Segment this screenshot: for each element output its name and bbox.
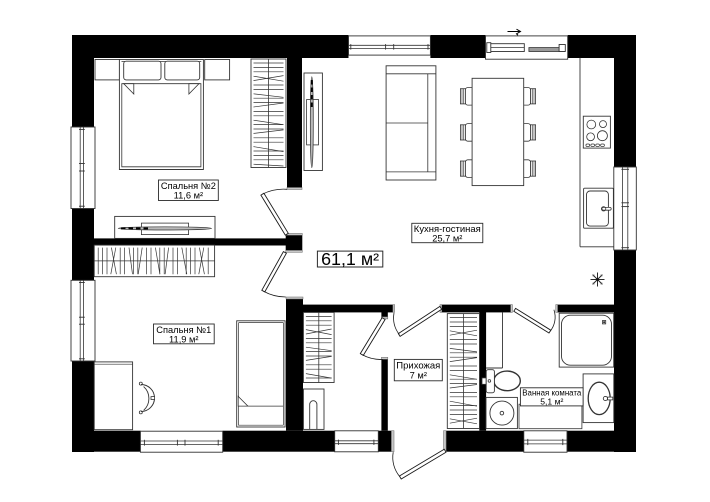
svg-text:Прихожая: Прихожая <box>396 361 440 371</box>
svg-text:Кухня-гостиная: Кухня-гостиная <box>414 224 481 234</box>
svg-text:11,6 м²: 11,6 м² <box>174 190 203 200</box>
svg-text:5,1 м²: 5,1 м² <box>540 396 563 406</box>
svg-text:7 м²: 7 м² <box>410 370 427 380</box>
svg-text:Спальня №2: Спальня №2 <box>161 181 216 191</box>
svg-text:25,7 м²: 25,7 м² <box>432 234 462 244</box>
svg-text:Спальня №1: Спальня №1 <box>156 325 211 335</box>
svg-text:61,1 м²: 61,1 м² <box>321 249 379 269</box>
svg-text:11,9 м²: 11,9 м² <box>169 334 198 344</box>
